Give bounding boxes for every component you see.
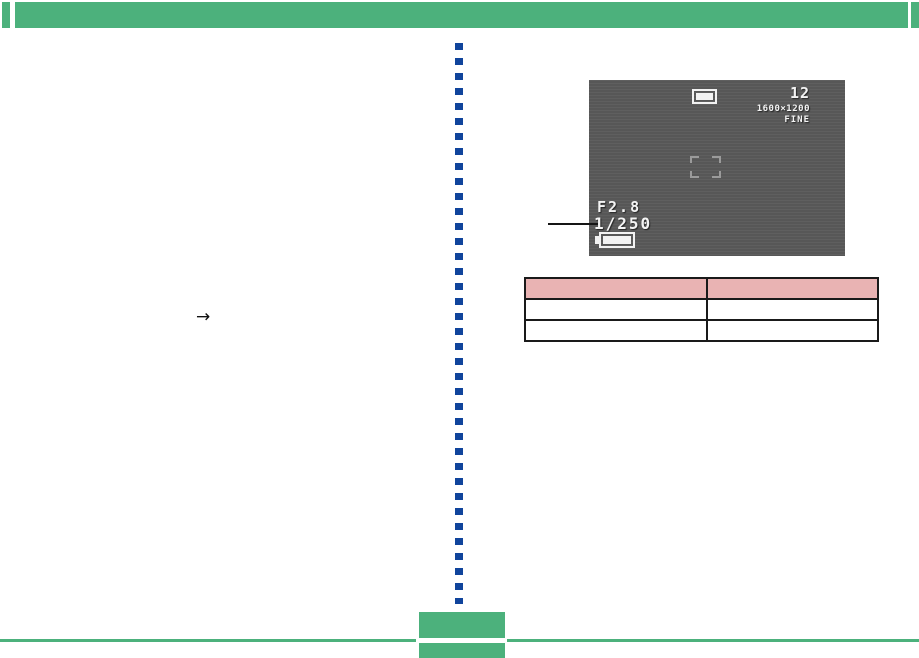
footer-rule-right bbox=[507, 639, 919, 642]
snapshot-mode-icon-fill bbox=[696, 93, 713, 100]
shots-remaining-value: 12 bbox=[790, 86, 810, 101]
table-cell bbox=[707, 320, 878, 341]
header-bar-cap-left bbox=[2, 2, 10, 28]
right-arrow-icon: → bbox=[196, 309, 210, 326]
table-cell bbox=[525, 299, 707, 320]
camera-lcd-screen: 12 1600×1200 FINE F2.8 1/250 bbox=[589, 80, 845, 256]
table-header-row bbox=[525, 278, 878, 299]
table-row bbox=[525, 320, 878, 341]
focus-frame-corner-br bbox=[712, 171, 721, 178]
table-header-cell bbox=[525, 278, 707, 299]
page-number-box-bottom bbox=[419, 643, 505, 658]
quality-value: FINE bbox=[784, 116, 810, 125]
footer-rule-left bbox=[0, 639, 416, 642]
table-row bbox=[525, 299, 878, 320]
table-cell bbox=[707, 299, 878, 320]
focus-frame-corner-tl bbox=[690, 156, 699, 163]
focus-frame-corner-tr bbox=[712, 156, 721, 163]
reference-table bbox=[524, 277, 879, 342]
header-bar bbox=[15, 2, 908, 28]
battery-level-icon bbox=[595, 232, 635, 248]
focus-frame-icon bbox=[690, 156, 721, 178]
shutter-speed-value: 1/250 bbox=[594, 216, 652, 232]
battery-icon-body bbox=[599, 232, 635, 248]
page-number-box-top bbox=[419, 612, 505, 638]
callout-line bbox=[548, 223, 598, 225]
snapshot-mode-icon bbox=[692, 89, 717, 104]
battery-icon-fill bbox=[603, 236, 631, 244]
resolution-value: 1600×1200 bbox=[757, 105, 810, 114]
table-cell bbox=[525, 320, 707, 341]
header-bar-cap-right bbox=[911, 2, 919, 28]
table-header-cell bbox=[707, 278, 878, 299]
focus-frame-corner-bl bbox=[690, 171, 699, 178]
aperture-value: F2.8 bbox=[597, 200, 641, 215]
dotted-column-divider bbox=[455, 43, 463, 604]
